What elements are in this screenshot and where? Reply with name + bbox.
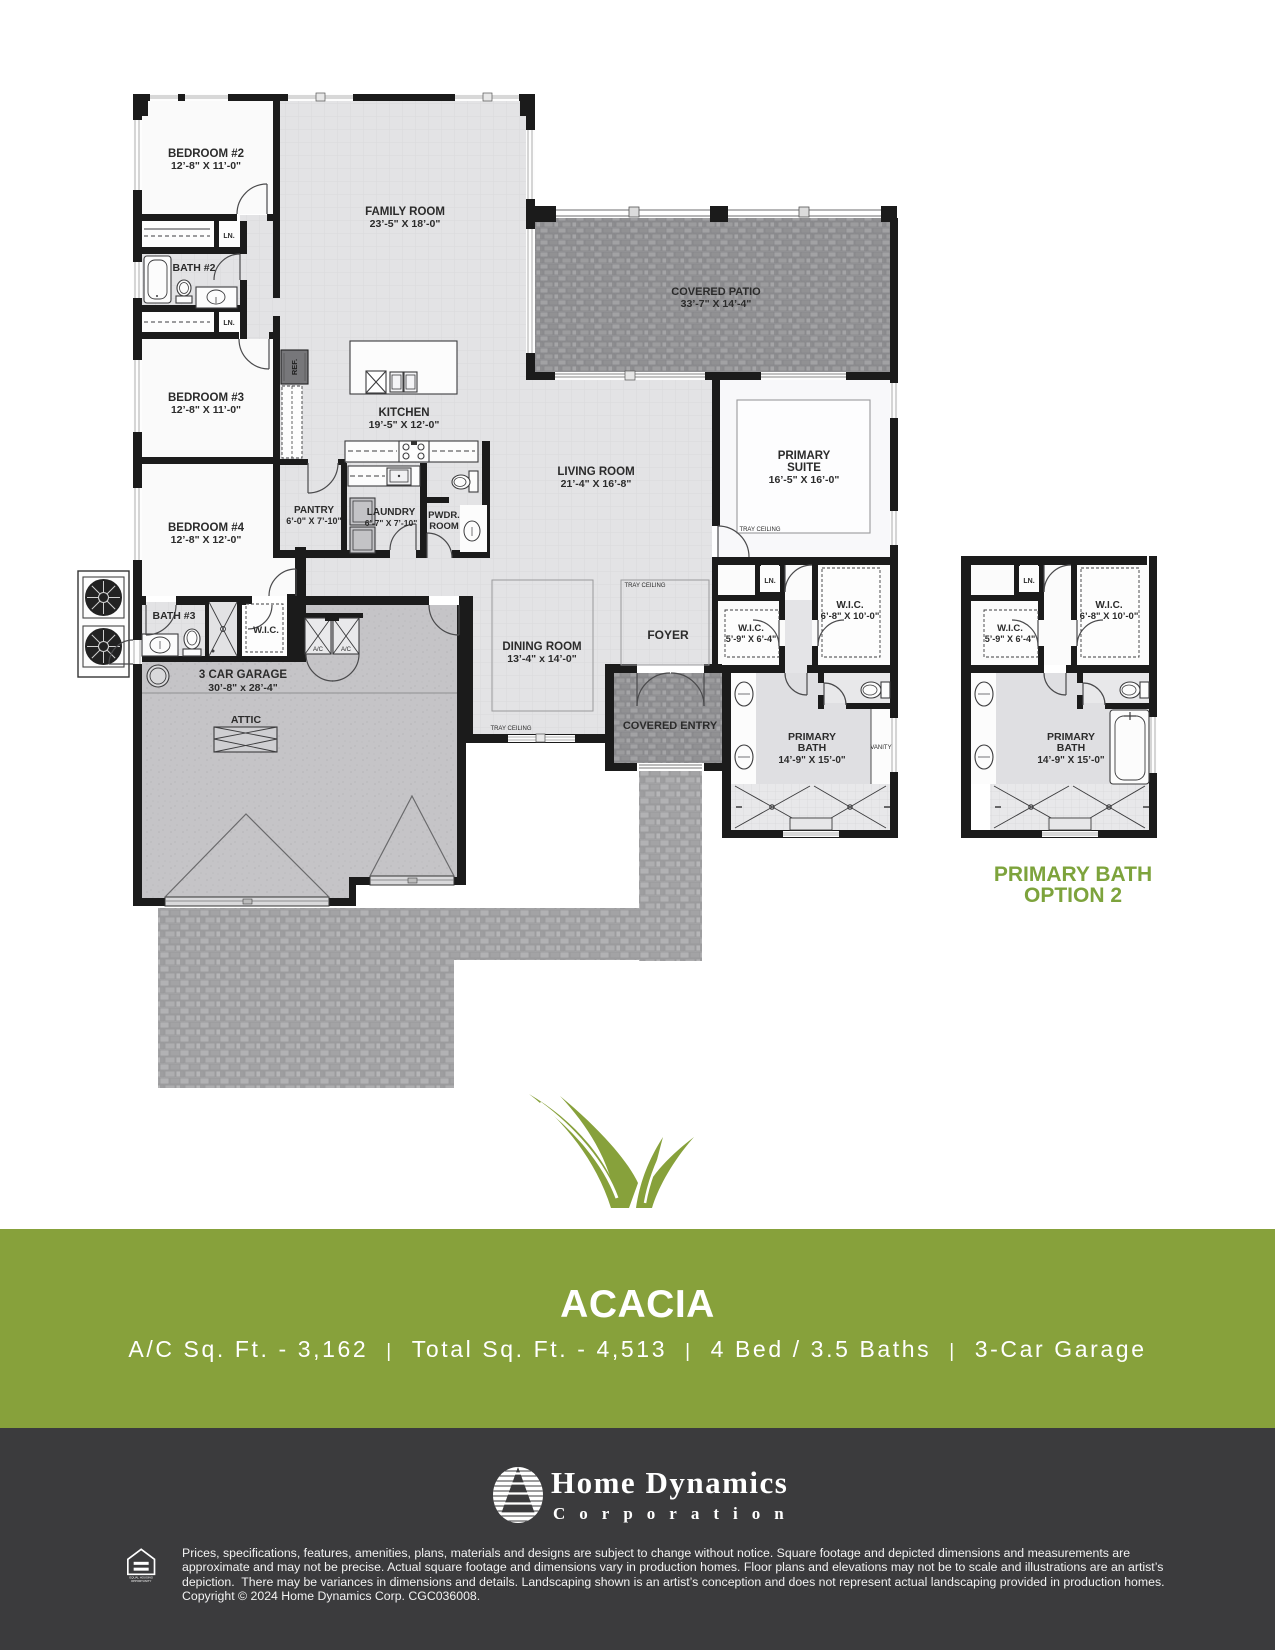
svg-text:FOYER: FOYER [647, 628, 689, 642]
svg-text:TRAY CEILING: TRAY CEILING [739, 527, 780, 533]
svg-text:LAUNDRY: LAUNDRY [367, 507, 416, 518]
svg-text:BEDROOM #4: BEDROOM #4 [168, 522, 245, 534]
svg-text:LN.: LN. [223, 233, 234, 240]
svg-text:COVERED PATIO: COVERED PATIO [671, 286, 761, 298]
svg-text:BATH: BATH [798, 742, 826, 754]
svg-text:6’-7" X 7’-10": 6’-7" X 7’-10" [365, 518, 417, 528]
svg-text:SUITE: SUITE [787, 462, 821, 474]
svg-text:DINING ROOM: DINING ROOM [502, 641, 581, 653]
svg-text:12’-8" X 12’-0": 12’-8" X 12’-0" [171, 534, 242, 546]
svg-text:BATH #3: BATH #3 [153, 610, 196, 622]
svg-text:14’-9" X 15’-0": 14’-9" X 15’-0" [1037, 755, 1105, 766]
svg-text:REF.: REF. [290, 359, 299, 375]
svg-text:19’-5" X 12’-0": 19’-5" X 12’-0" [369, 419, 440, 431]
svg-text:A/C: A/C [341, 647, 352, 653]
svg-text:FAMILY ROOM: FAMILY ROOM [365, 206, 445, 218]
svg-text:PANTRY: PANTRY [294, 505, 334, 516]
svg-text:W.I.C.: W.I.C. [253, 625, 279, 636]
svg-text:W.I.C.: W.I.C. [738, 623, 764, 634]
svg-text:KITCHEN: KITCHEN [378, 407, 429, 419]
svg-text:W.I.C.: W.I.C. [1095, 600, 1122, 611]
svg-text:13’-4" x 14’-0": 13’-4" x 14’-0" [507, 653, 577, 665]
svg-text:TRAY CEILING: TRAY CEILING [624, 583, 665, 589]
svg-text:BATH: BATH [1057, 742, 1085, 754]
svg-text:12’-8" X 11’-0": 12’-8" X 11’-0" [171, 160, 241, 172]
svg-text:16’-5" X 16’-0": 16’-5" X 16’-0" [769, 474, 840, 486]
svg-text:PRIMARY BATH: PRIMARY BATH [994, 863, 1152, 886]
svg-text:BEDROOM #2: BEDROOM #2 [168, 148, 244, 160]
svg-text:21’-4" X 16’-8": 21’-4" X 16’-8" [561, 478, 632, 490]
svg-text:5’-9" X 6’-4": 5’-9" X 6’-4" [985, 634, 1036, 644]
svg-text:3 CAR GARAGE: 3 CAR GARAGE [199, 669, 288, 681]
svg-text:A/C: A/C [313, 647, 324, 653]
svg-text:14’-9" X 15’-0": 14’-9" X 15’-0" [778, 755, 846, 766]
svg-text:12’-8" X 11’-0": 12’-8" X 11’-0" [171, 404, 241, 416]
svg-text:VANITY: VANITY [870, 745, 891, 751]
svg-text:OPTION 2: OPTION 2 [1024, 884, 1122, 907]
svg-text:PRIMARY: PRIMARY [778, 450, 831, 462]
svg-text:6’-8" X 10’-0": 6’-8" X 10’-0" [821, 611, 880, 622]
svg-text:ROOM: ROOM [429, 521, 459, 532]
svg-text:TRAY CEILING: TRAY CEILING [490, 726, 531, 732]
svg-text:LN.: LN. [223, 320, 234, 327]
svg-text:W.I.C.: W.I.C. [997, 623, 1023, 634]
svg-text:5’-9" X 6’-4": 5’-9" X 6’-4" [726, 634, 777, 644]
svg-text:ATTIC: ATTIC [231, 714, 262, 726]
svg-text:LN.: LN. [1023, 578, 1034, 585]
svg-text:33’-7" X 14’-4": 33’-7" X 14’-4" [681, 298, 752, 310]
svg-text:LIVING ROOM: LIVING ROOM [557, 466, 634, 478]
svg-text:W.I.C.: W.I.C. [836, 600, 863, 611]
svg-text:PWDR.: PWDR. [428, 510, 460, 521]
svg-text:OPPORTUNITY: OPPORTUNITY [131, 1579, 151, 1583]
svg-text:30’-8" x 28’-4": 30’-8" x 28’-4" [208, 682, 278, 694]
svg-text:6’-8" X 10’-0": 6’-8" X 10’-0" [1080, 611, 1139, 622]
svg-text:6’-0" X 7’-10": 6’-0" X 7’-10" [286, 516, 342, 526]
svg-text:23’-5" X 18’-0": 23’-5" X 18’-0" [370, 218, 441, 230]
svg-text:COVERED ENTRY: COVERED ENTRY [623, 720, 718, 732]
svg-text:BATH #2: BATH #2 [173, 262, 216, 274]
svg-text:LN.: LN. [764, 578, 775, 585]
svg-text:BEDROOM #3: BEDROOM #3 [168, 392, 244, 404]
